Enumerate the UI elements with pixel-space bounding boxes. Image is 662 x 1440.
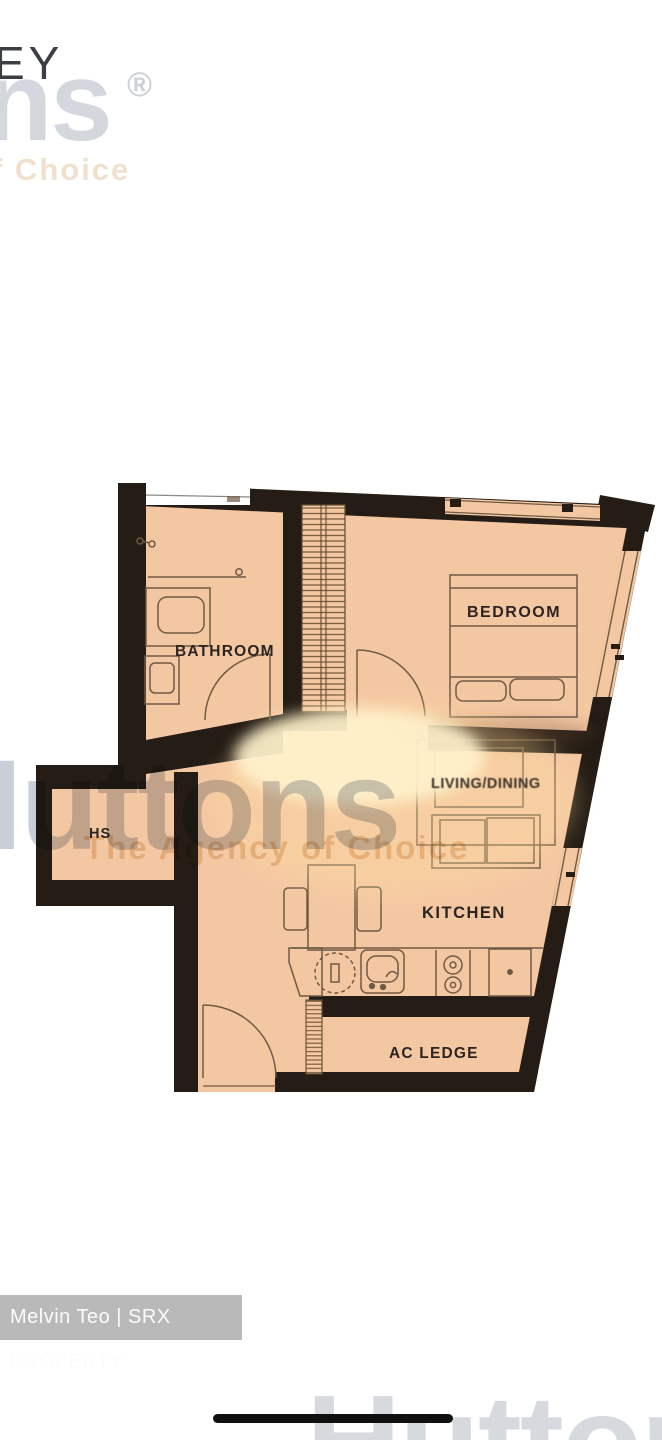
room-label-bathroom: BATHROOM [175, 643, 275, 660]
room-label-living-dining: LIVING/DINING [431, 776, 541, 792]
floor-plan-page: BATHROOM BEDROOM LIVING/DINING KITCHEN H… [0, 0, 662, 1440]
ac-vent-strip [306, 1000, 322, 1074]
wardrobe [302, 505, 345, 712]
room-label-bedroom: BEDROOM [467, 604, 561, 621]
room-label-kitchen: KITCHEN [422, 904, 506, 922]
agent-credit-badge: Melvin Teo | SRX PROPERTY [0, 1295, 242, 1340]
window-bathroom-top [146, 484, 250, 505]
divider-line [213, 1414, 453, 1423]
room-label-hs: HS [89, 826, 111, 842]
room-label-ac-ledge: AC LEDGE [389, 1045, 479, 1062]
floor-plan-drawing: BATHROOM BEDROOM LIVING/DINING KITCHEN H… [0, 0, 662, 1440]
